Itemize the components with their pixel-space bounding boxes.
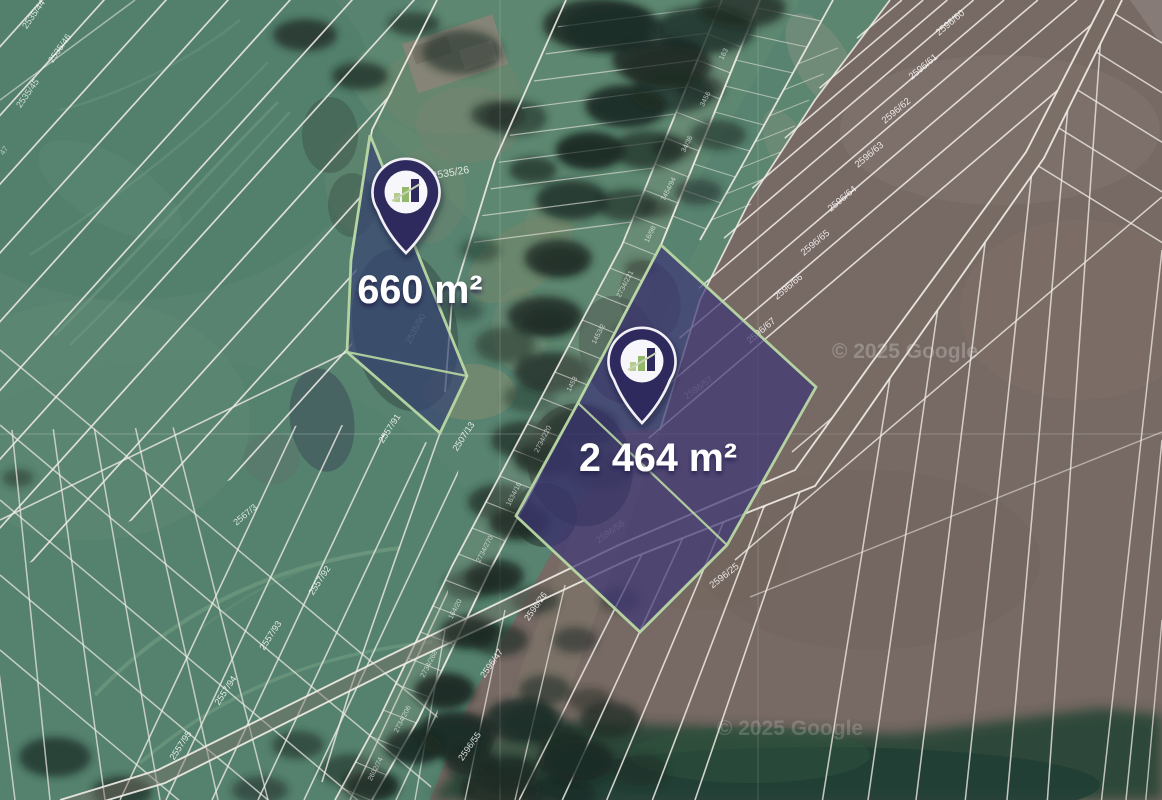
svg-text:© 2025 Google: © 2025 Google <box>832 340 978 363</box>
svg-text:© 2025 Google: © 2025 Google <box>717 717 863 740</box>
svg-text:660 m²: 660 m² <box>357 268 482 312</box>
svg-text:2 464 m²: 2 464 m² <box>579 436 737 480</box>
